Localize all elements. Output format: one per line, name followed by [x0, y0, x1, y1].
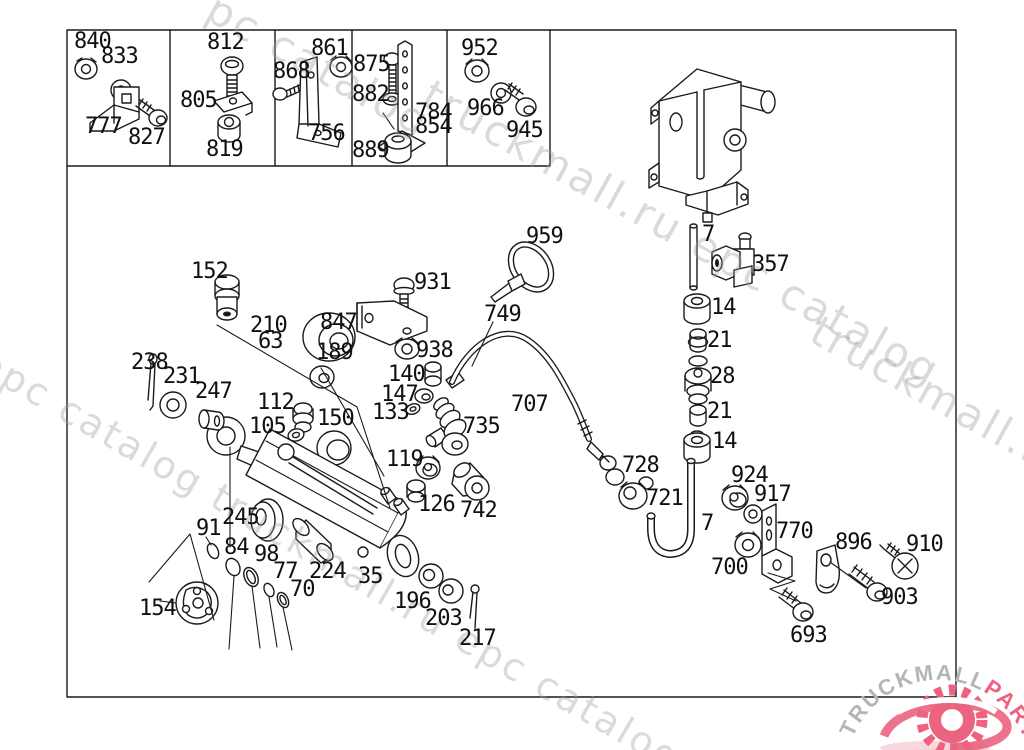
clamp-896	[816, 545, 866, 593]
bracket-770	[762, 504, 796, 601]
diagram-line-art: TRUCKMALLPARTS	[0, 0, 1024, 750]
part-840-nut	[75, 58, 97, 79]
washer-196	[419, 564, 443, 588]
cotter-pin-238	[148, 354, 157, 410]
part-805-bracket	[214, 92, 252, 115]
fitting-357	[712, 233, 754, 287]
washer-231	[160, 392, 186, 418]
end-plate-154	[176, 582, 218, 624]
bushing-210-63	[303, 313, 355, 361]
part-952-nut	[465, 59, 489, 82]
screw-910	[880, 543, 918, 579]
fitting-28	[685, 356, 711, 404]
nut-14-lower	[684, 431, 710, 463]
pipe-7-bent	[647, 459, 695, 555]
ring-133	[405, 402, 422, 416]
banjo-fitting-735	[424, 395, 469, 455]
valve-body-assembly	[649, 69, 775, 222]
disc-245	[251, 499, 283, 541]
nut-924	[722, 485, 748, 510]
parts-diagram-page: TRUCKMALLPARTS pc catalogtruckmall.ru ep…	[0, 0, 1024, 750]
hose-707	[446, 334, 609, 462]
sleeve-21-lower	[690, 405, 706, 426]
pin-224	[290, 516, 336, 564]
sleeve-21-upper	[689, 329, 708, 352]
part-889-nut	[385, 133, 411, 163]
fitting-728	[600, 455, 624, 485]
part-827-bolt	[136, 99, 167, 126]
nut-938	[395, 338, 419, 359]
cable-tie-959	[491, 233, 563, 302]
fitting-721	[619, 477, 653, 509]
elbow-fitting-742	[451, 460, 489, 500]
washer-917	[744, 505, 762, 523]
bolt-903	[849, 565, 887, 601]
bolt-693	[779, 588, 813, 621]
nut-700	[735, 532, 761, 557]
part-819-nut	[218, 115, 240, 142]
bracket-847	[357, 301, 427, 345]
nut-119	[416, 456, 440, 479]
fitting-140	[425, 362, 441, 386]
part-861-nut	[330, 56, 352, 77]
sleeve-126	[407, 480, 425, 502]
washer-147	[415, 389, 433, 403]
part-868-screw	[273, 84, 303, 100]
part-777-bracket	[90, 87, 139, 131]
nut-14-upper	[684, 294, 710, 324]
cotter-pin-217	[470, 585, 479, 628]
pipe-7-upper	[690, 224, 697, 290]
bushing-247	[199, 410, 224, 430]
fitting-112	[293, 403, 313, 432]
washer-203	[439, 579, 463, 603]
fitting-152	[215, 275, 239, 320]
